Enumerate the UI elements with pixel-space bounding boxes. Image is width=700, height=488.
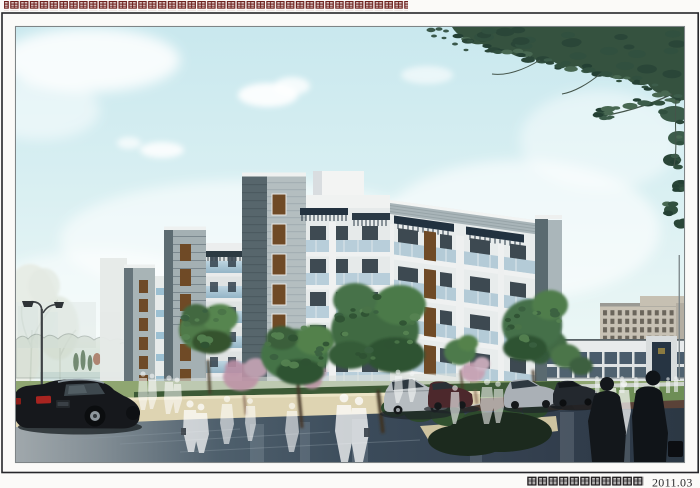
svg-text:2011.03: 2011.03 [652,476,693,488]
